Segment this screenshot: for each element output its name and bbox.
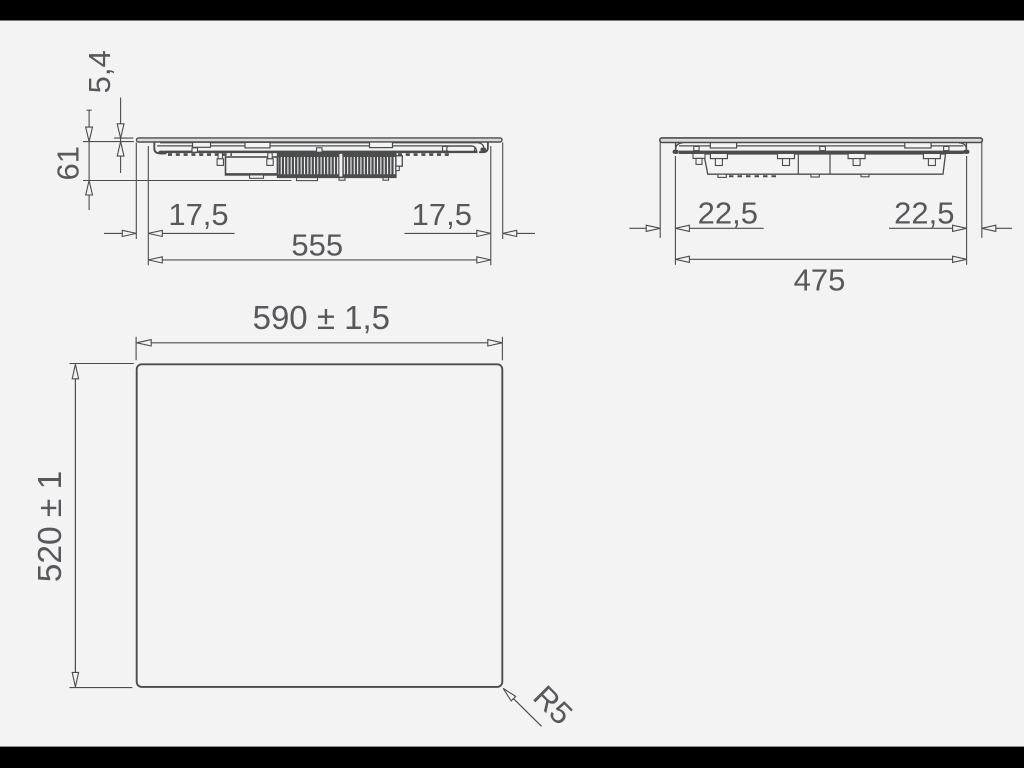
svg-text:22,5: 22,5 [698,195,758,230]
svg-text:17,5: 17,5 [412,197,472,232]
svg-text:17,5: 17,5 [168,197,228,232]
svg-text:555: 555 [291,227,343,262]
svg-text:22,5: 22,5 [894,195,954,230]
svg-text:5,4: 5,4 [82,50,117,93]
svg-text:475: 475 [794,262,846,297]
svg-text:61: 61 [51,146,86,180]
svg-text:520 ± 1: 520 ± 1 [32,471,69,583]
svg-text:590 ± 1,5: 590 ± 1,5 [253,299,390,336]
